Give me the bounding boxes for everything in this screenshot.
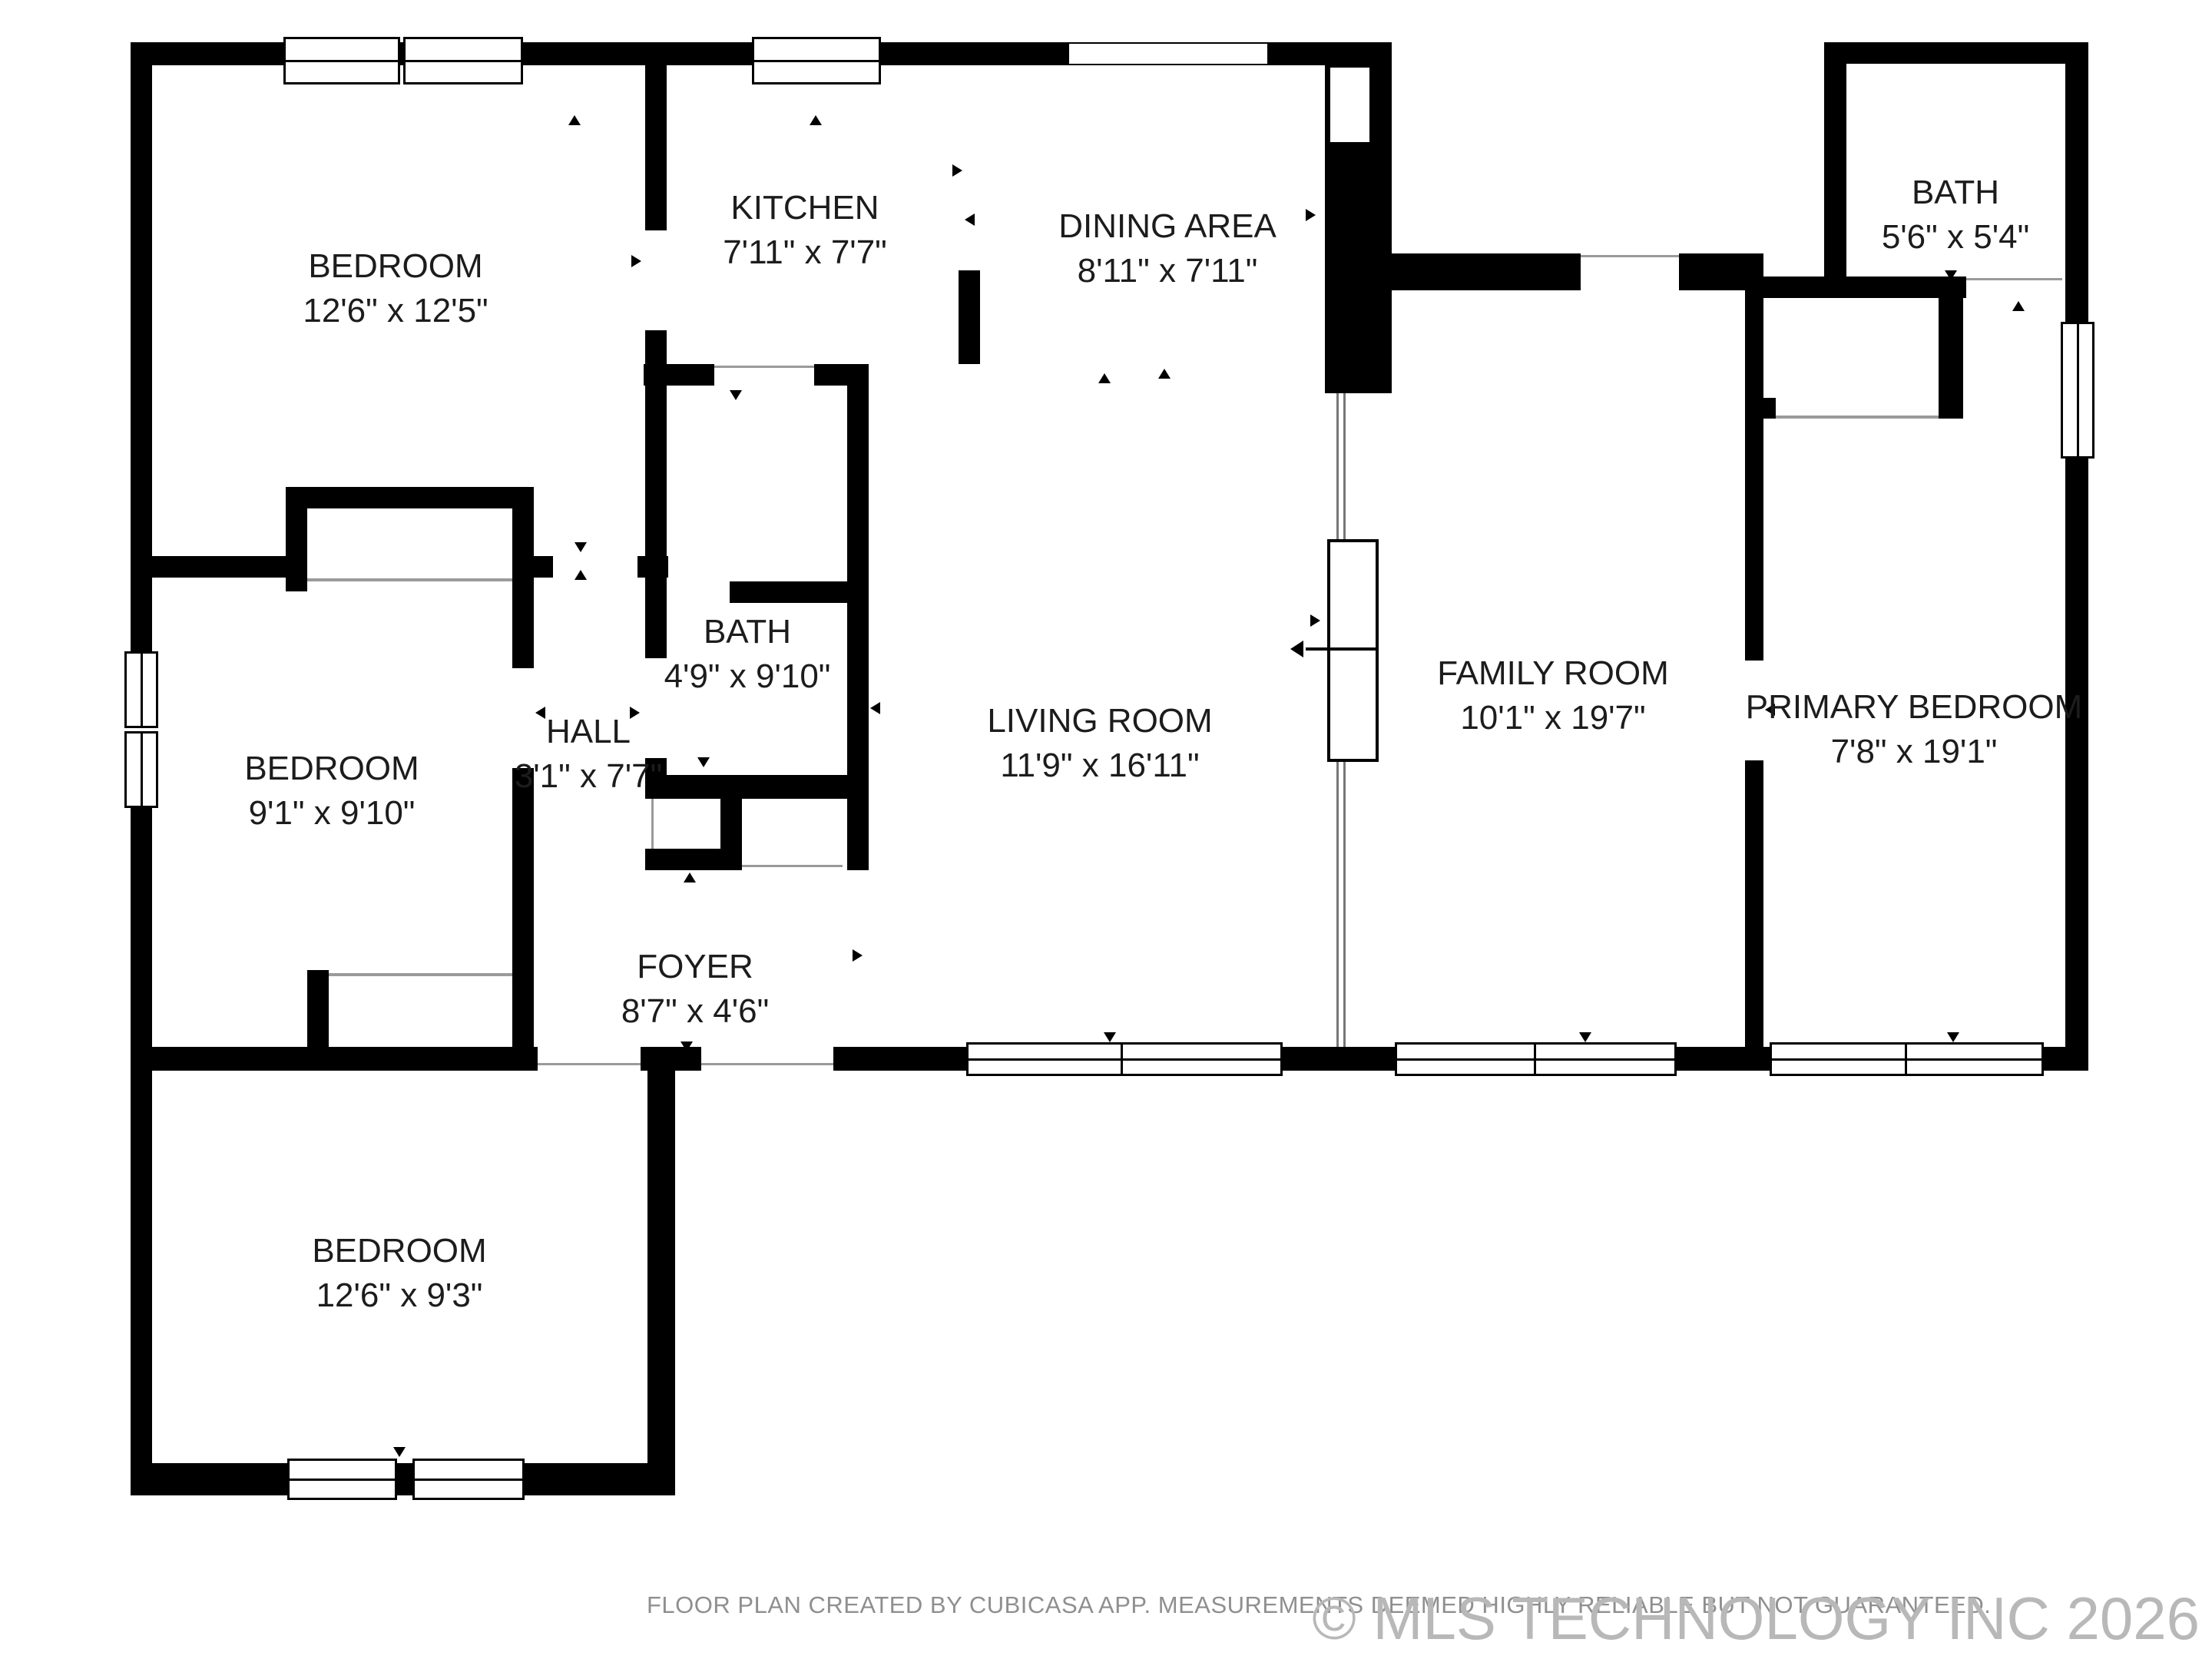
wall-segment xyxy=(1392,253,1581,290)
wall-segment xyxy=(1824,42,1846,276)
room-dims: 12'6" x 9'3" xyxy=(312,1273,486,1318)
door-direction-arrow xyxy=(1947,1032,1959,1042)
closet-slider-line xyxy=(742,865,843,867)
door-direction-arrow xyxy=(1945,270,1957,280)
door-direction-arrow xyxy=(870,702,880,714)
window-symbol xyxy=(752,37,881,84)
wall-segment xyxy=(645,65,667,230)
wall-segment xyxy=(833,1047,966,1071)
room-dims: 5'6" x 5'4" xyxy=(1882,215,2029,260)
window-symbol xyxy=(2061,322,2094,459)
closet-wall xyxy=(645,849,742,870)
wall-segment xyxy=(637,556,668,578)
room-dims: 3'1" x 7'7" xyxy=(515,754,662,799)
door-direction-arrow xyxy=(631,255,641,267)
room-label-primary-bedroom: PRIMARY BEDROOM 7'8" x 19'1" xyxy=(1746,685,2082,774)
tub-wall xyxy=(730,581,855,603)
door-direction-arrow xyxy=(1579,1032,1591,1042)
wall-segment xyxy=(1745,253,1763,661)
window-symbol xyxy=(403,37,523,84)
wall-segment xyxy=(1677,1047,1770,1071)
window-arrow xyxy=(393,1447,406,1457)
door-direction-arrow xyxy=(952,164,962,177)
door-opening-line xyxy=(714,366,814,368)
wall-segment xyxy=(131,808,152,1495)
wall-segment xyxy=(131,1047,538,1071)
closet-slider-line xyxy=(307,578,512,581)
floor-plan-canvas: BEDROOM 12'6" x 12'5" KITCHEN 7'11" x 7'… xyxy=(0,0,2212,1659)
window-arrow xyxy=(810,115,822,125)
door-direction-arrow xyxy=(853,949,863,962)
wall-segment xyxy=(131,42,1068,65)
door-direction-arrow xyxy=(575,570,587,580)
door-opening-line xyxy=(538,1063,641,1065)
wall-segment xyxy=(1283,1047,1395,1071)
watermark-text: © MLS TECHNOLOGY INC 2026 xyxy=(1312,1584,2200,1654)
wall-segment xyxy=(645,775,869,799)
wall-segment xyxy=(644,364,714,386)
room-label-foyer: FOYER 8'7" x 4'6" xyxy=(621,945,769,1034)
door-direction-arrow xyxy=(137,250,147,262)
closet-wall xyxy=(307,970,329,1047)
window-symbol xyxy=(287,1459,397,1500)
room-dims: 8'7" x 4'6" xyxy=(621,989,769,1034)
room-label-dining-area: DINING AREA 8'11" x 7'11" xyxy=(1058,204,1277,293)
room-label-living-room: LIVING ROOM 11'9" x 16'11" xyxy=(987,699,1212,788)
window-symbol xyxy=(412,1459,525,1500)
room-name: LIVING ROOM xyxy=(987,699,1212,743)
wall-segment xyxy=(1763,276,1966,298)
wall-segment xyxy=(1267,42,1392,65)
closet-wall xyxy=(286,487,307,591)
closet-wall xyxy=(286,487,534,508)
room-dims: 7'11" x 7'7" xyxy=(723,230,887,275)
door-direction-arrow xyxy=(1306,209,1316,221)
door-direction-arrow xyxy=(1104,1032,1116,1042)
window-symbol xyxy=(1770,1042,1908,1076)
door-direction-arrow xyxy=(1158,369,1171,379)
window-symbol xyxy=(1121,1042,1283,1076)
room-name: BEDROOM xyxy=(244,747,419,791)
door-direction-arrow xyxy=(575,542,587,552)
door-opening-line xyxy=(1581,255,1679,257)
room-name: HALL xyxy=(515,710,662,754)
room-name: BATH xyxy=(664,610,831,654)
wall-segment xyxy=(131,1463,675,1495)
door-opening-line xyxy=(1966,278,2062,280)
room-label-bedroom-3: BEDROOM 12'6" x 9'3" xyxy=(312,1229,486,1318)
window-symbol xyxy=(124,731,158,808)
room-name: BEDROOM xyxy=(312,1229,486,1273)
wall-segment xyxy=(131,556,286,578)
closet-wall xyxy=(1763,398,1776,419)
sliding-door-arrow-line xyxy=(1306,647,1379,651)
room-name: DINING AREA xyxy=(1058,204,1277,249)
wall-segment xyxy=(2044,1047,2088,1071)
window-symbol xyxy=(1534,1042,1677,1076)
room-dims: 12'6" x 12'5" xyxy=(303,289,488,333)
room-label-bath-hall: BATH 4'9" x 9'10" xyxy=(664,610,831,699)
room-name: FAMILY ROOM xyxy=(1437,651,1669,696)
wall-segment xyxy=(647,1068,675,1495)
entry-door-line xyxy=(701,1063,833,1065)
room-dims: 7'8" x 19'1" xyxy=(1746,730,2082,774)
door-direction-arrow xyxy=(2012,301,2025,311)
wall-stub xyxy=(959,270,980,364)
closet-wall xyxy=(720,799,742,849)
closet-wall xyxy=(1939,298,1963,419)
sliding-door-panel xyxy=(1327,539,1379,762)
room-dims: 9'1" x 9'10" xyxy=(244,791,419,836)
window-symbol xyxy=(283,37,400,84)
closet-line xyxy=(651,799,654,849)
room-label-family-room: FAMILY ROOM 10'1" x 19'7" xyxy=(1437,651,1669,740)
door-direction-arrow xyxy=(1522,261,1535,271)
wall-segment xyxy=(814,364,869,386)
room-dims: 8'11" x 7'11" xyxy=(1058,249,1277,293)
wall-segment xyxy=(1745,760,1763,1047)
room-label-hall: HALL 3'1" x 7'7" xyxy=(515,710,662,799)
room-dims: 4'9" x 9'10" xyxy=(664,654,831,699)
window-symbol xyxy=(1068,42,1269,65)
room-label-bath-top-right: BATH 5'6" x 5'4" xyxy=(1882,171,2029,260)
door-direction-arrow xyxy=(697,757,710,767)
wall-segment xyxy=(512,570,534,668)
closet-slider-line xyxy=(1773,416,1939,419)
room-name: BEDROOM xyxy=(303,244,488,289)
room-name: KITCHEN xyxy=(723,186,887,230)
room-name: PRIMARY BEDROOM xyxy=(1746,685,2082,730)
chimney-niche xyxy=(1328,68,1369,142)
door-direction-arrow xyxy=(568,115,581,125)
room-dims: 10'1" x 19'7" xyxy=(1437,696,1669,740)
door-direction-arrow xyxy=(730,390,742,400)
wall-segment xyxy=(1824,42,2088,64)
window-symbol xyxy=(1395,1042,1537,1076)
wall-segment xyxy=(2065,42,2088,322)
room-name: FOYER xyxy=(621,945,769,989)
door-direction-arrow xyxy=(137,1252,147,1264)
room-label-kitchen: KITCHEN 7'11" x 7'7" xyxy=(723,186,887,275)
room-dims: 11'9" x 16'11" xyxy=(987,743,1212,788)
closet-slider-line xyxy=(329,973,512,976)
door-direction-arrow xyxy=(965,214,975,226)
wall-segment xyxy=(534,556,553,578)
closet-wall xyxy=(512,970,534,1047)
window-symbol xyxy=(1905,1042,2044,1076)
door-direction-arrow xyxy=(684,873,696,882)
room-label-bedroom-2: BEDROOM 9'1" x 9'10" xyxy=(244,747,419,836)
window-symbol xyxy=(124,651,158,728)
door-direction-arrow xyxy=(1098,373,1111,383)
entry-door-arrow xyxy=(680,1041,693,1051)
room-label-bedroom-1: BEDROOM 12'6" x 12'5" xyxy=(303,244,488,333)
room-name: BATH xyxy=(1882,171,2029,215)
sliding-door-arrow xyxy=(1290,641,1303,657)
window-symbol xyxy=(966,1042,1124,1076)
door-direction-arrow xyxy=(1310,614,1320,627)
